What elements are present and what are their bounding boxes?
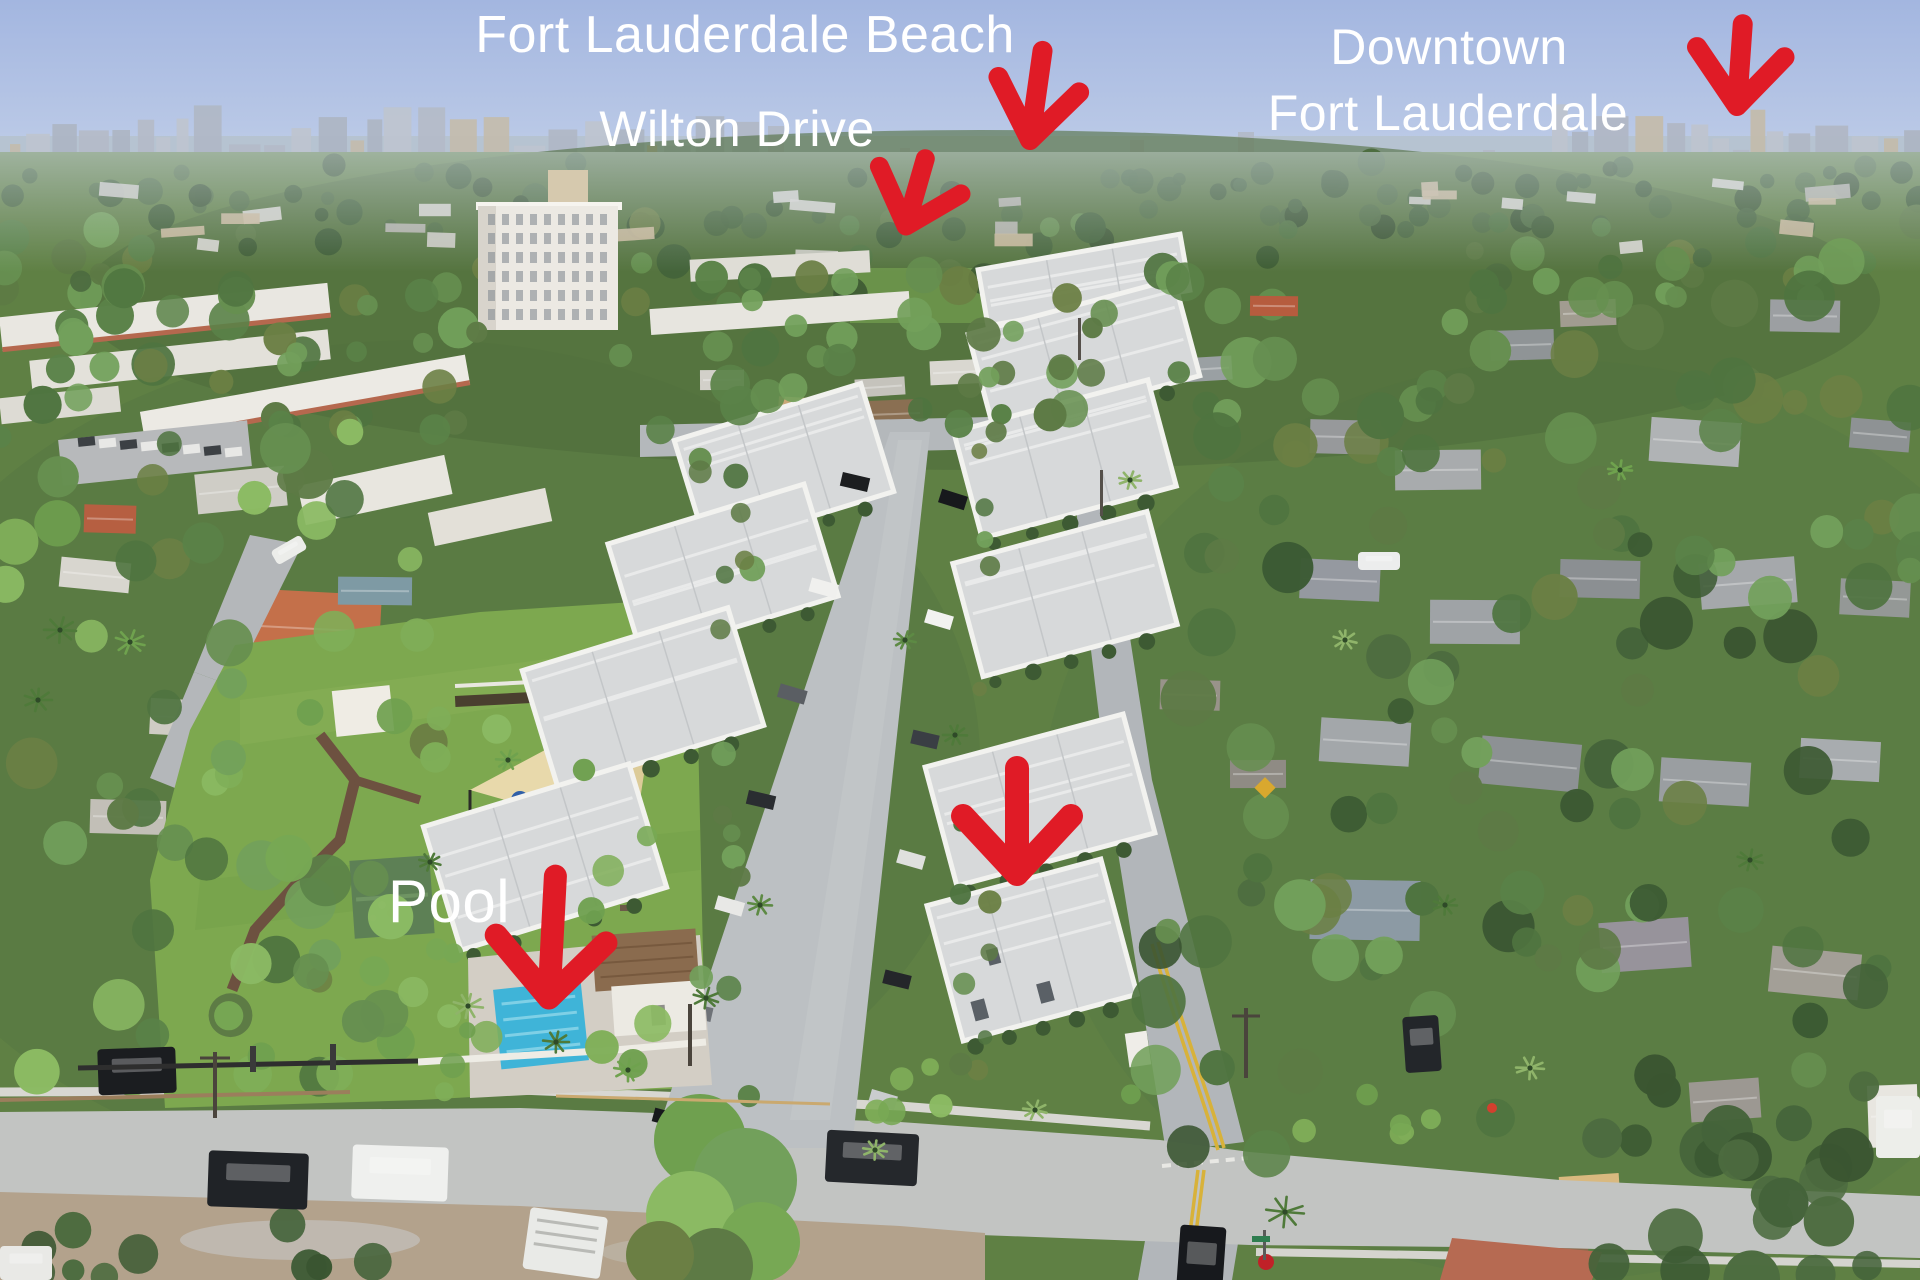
utility-pole xyxy=(213,1052,217,1118)
label-downtown-line-1: Downtown xyxy=(1330,19,1567,75)
utility-pole xyxy=(1078,318,1081,360)
utility-pole xyxy=(688,1004,692,1066)
atmospheric-haze xyxy=(0,152,1920,272)
fire-hydrant xyxy=(1487,1103,1497,1113)
label-wilton-drive: Wilton Drive xyxy=(599,101,874,157)
gate-post xyxy=(330,1044,336,1070)
gate-post xyxy=(250,1046,256,1072)
utility-pole xyxy=(1100,470,1103,516)
aerial-photo: Fort Lauderdale Beach Wilton Drive Downt… xyxy=(0,0,1920,1280)
scene-canvas: Fort Lauderdale Beach Wilton Drive Downt… xyxy=(0,0,1920,1280)
label-fort-lauderdale-beach: Fort Lauderdale Beach xyxy=(475,6,1015,64)
utility-pole xyxy=(1244,1008,1248,1078)
street-sign xyxy=(1252,1236,1270,1242)
label-downtown-line-2: Fort Lauderdale xyxy=(1268,85,1629,141)
